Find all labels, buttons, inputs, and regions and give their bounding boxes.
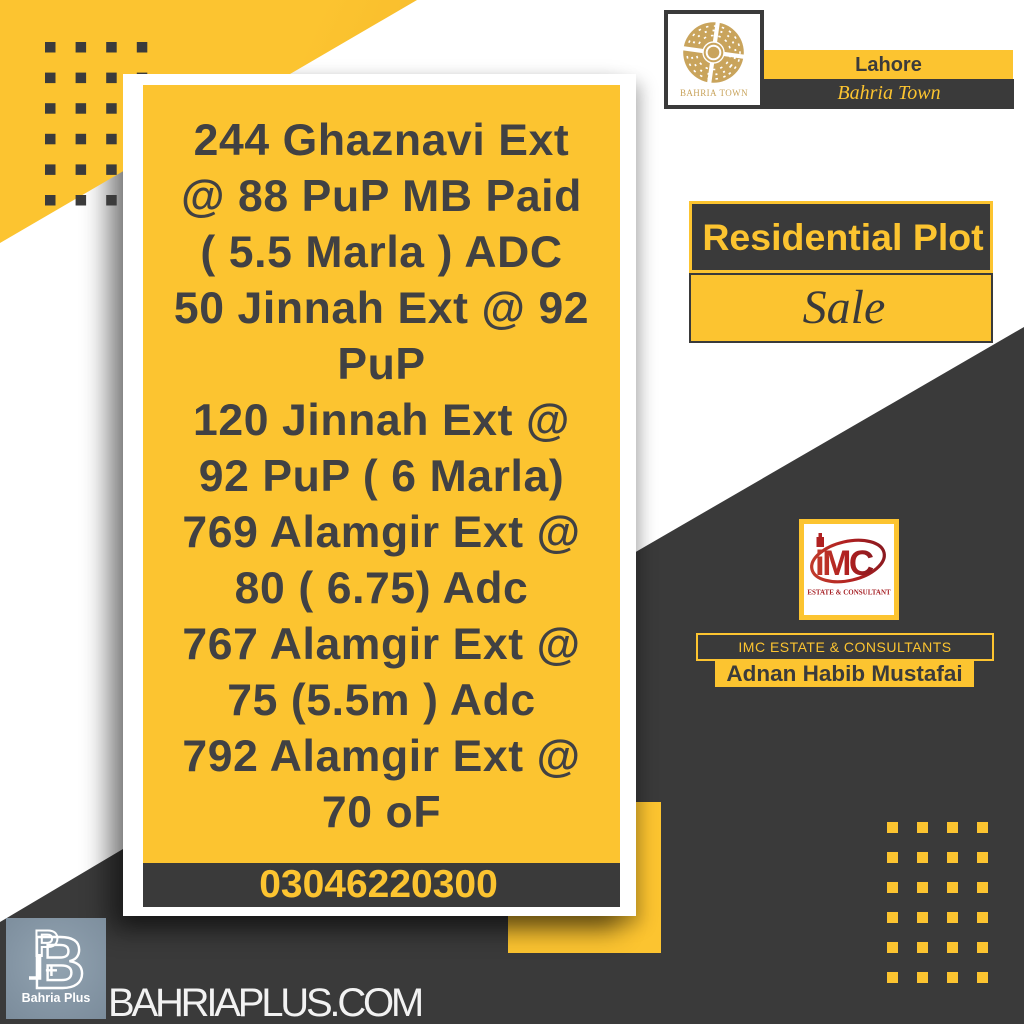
- svg-text:+: +: [45, 958, 58, 983]
- svg-text:iMC: iMC: [815, 544, 874, 583]
- svg-text:ESTATE & CONSULTANT: ESTATE & CONSULTANT: [807, 589, 891, 597]
